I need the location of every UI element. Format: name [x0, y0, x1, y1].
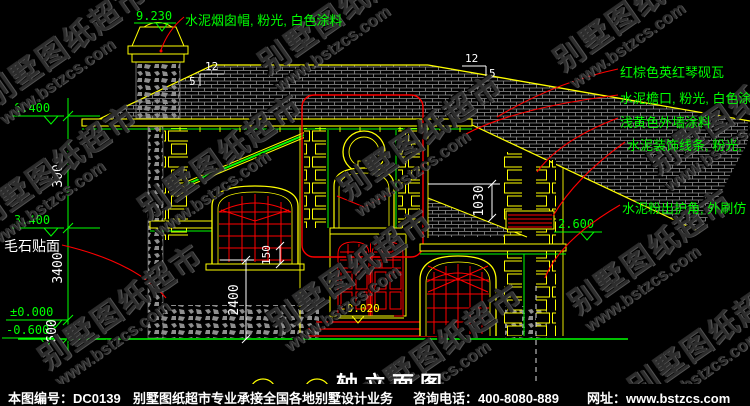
dimension-system: [63, 98, 100, 354]
svg-text:5: 5: [189, 75, 196, 88]
callout-cornice: 水泥檐口, 粉光, 白色涂料: [620, 88, 750, 107]
dim-sill: 150: [260, 245, 273, 265]
dim-parapet: 1030: [472, 185, 487, 216]
dim-plinth: 600: [45, 319, 60, 342]
dim-floor1: 3400: [51, 252, 66, 283]
footer-website: 网址：www.bstzcs.com: [587, 388, 730, 406]
svg-text:12: 12: [465, 52, 478, 65]
footer-phone: 咨询电话：400-8080-889: [413, 388, 559, 406]
svg-text:12: 12: [205, 60, 218, 73]
level-chimney-top: 9.230: [136, 9, 172, 23]
level-eave: 6.400: [14, 101, 50, 115]
callout-corner-guard: 水泥粉出护角, 外刷仿: [622, 198, 746, 217]
dim-floor2: 3000: [51, 156, 66, 187]
callout-wall-paint: 浅黄色外墙涂料: [620, 112, 711, 131]
level-ground: ±0.000: [10, 305, 53, 319]
callout-stone-veneer: 毛石贴面: [4, 236, 60, 256]
callout-trim: 水泥装饰线条, 粉光,: [627, 135, 742, 154]
dim-window-height: 2400: [227, 284, 242, 315]
chimney: [128, 23, 188, 119]
svg-text:5: 5: [489, 67, 496, 80]
canopy: [184, 131, 308, 191]
level-right-eave: 2.600: [558, 217, 594, 231]
louver-vent: [506, 211, 554, 229]
right-wing: [420, 152, 566, 336]
footer-service: 别墅图纸超市专业承接全国各地别墅设计业务: [133, 388, 393, 406]
level-second-floor: 3.400: [14, 213, 50, 227]
level-site: -0.600: [6, 323, 49, 337]
callout-chimney-cap: 水泥烟囱帽, 粉光, 白色涂料: [185, 10, 342, 29]
footer-bar: 本图编号：DC0139 别墅图纸超市专业承接全国各地别墅设计业务 咨询电话：40…: [0, 384, 750, 406]
callout-roof-tile: 红棕色英红琴砚瓦: [620, 62, 724, 81]
cad-elevation-sheet: 9.230 6.400 3.400 ±0.000 -0.600 2.600 -0…: [0, 0, 750, 406]
window-left: [206, 186, 304, 270]
footer-sheet-no: 本图编号：DC0139: [8, 388, 121, 406]
level-door-threshold: -0.020: [340, 302, 380, 315]
